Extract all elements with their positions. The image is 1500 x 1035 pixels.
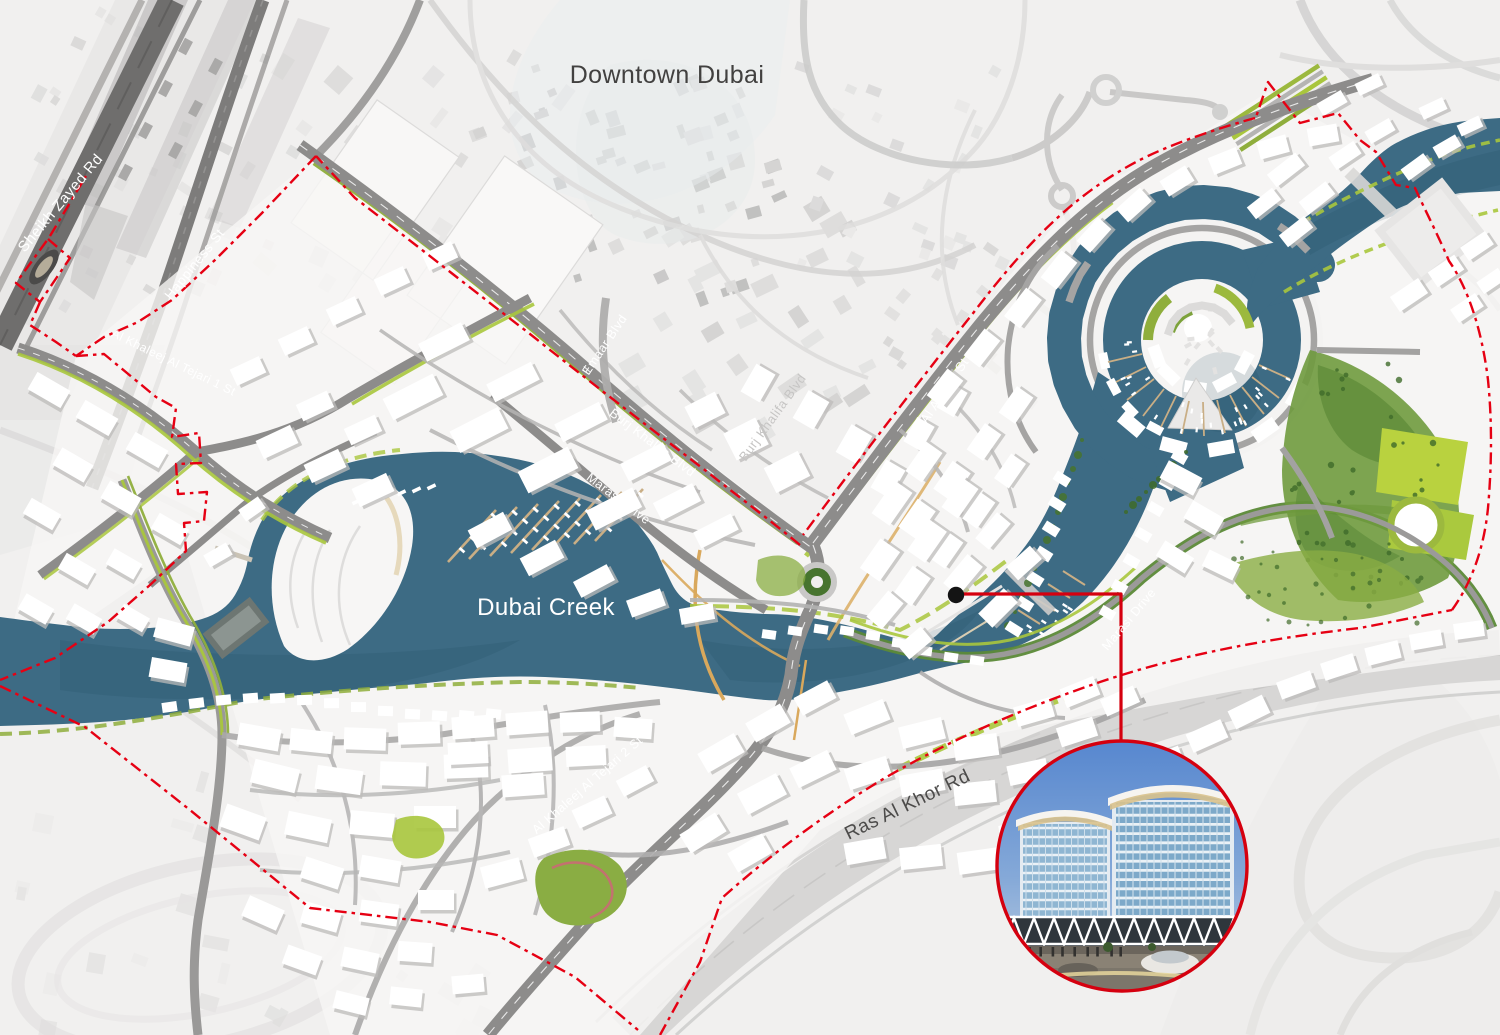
svg-text:Downtown Dubai: Downtown Dubai xyxy=(570,61,765,89)
svg-text:Dubai Creek: Dubai Creek xyxy=(477,594,615,621)
